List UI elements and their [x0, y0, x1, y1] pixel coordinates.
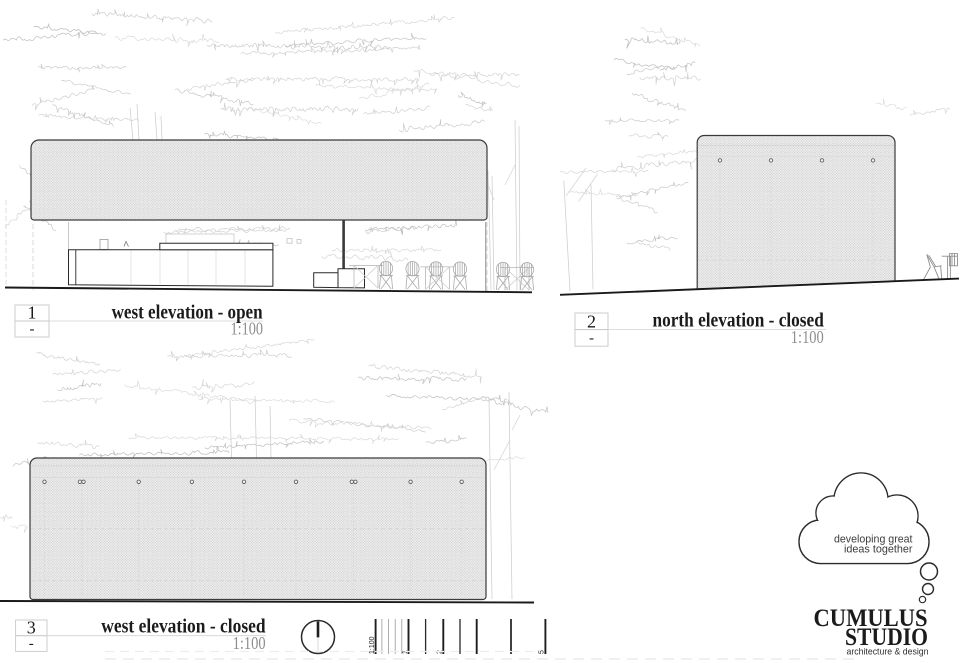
svg-text:3: 3: [27, 617, 36, 637]
svg-text:1:100: 1:100: [791, 327, 824, 347]
svg-text:-: -: [29, 636, 34, 652]
svg-text:1:100: 1:100: [369, 636, 376, 654]
svg-text:1: 1: [28, 303, 37, 323]
svg-text:5: 5: [539, 650, 546, 654]
svg-text:1:100: 1:100: [233, 633, 266, 653]
svg-text:-: -: [589, 331, 594, 347]
svg-text:2: 2: [587, 311, 596, 331]
svg-text:1:100: 1:100: [231, 318, 264, 338]
svg-text:ideas together: ideas together: [844, 543, 913, 555]
svg-text:-: -: [30, 322, 35, 338]
svg-text:architecture & design: architecture & design: [847, 647, 929, 657]
